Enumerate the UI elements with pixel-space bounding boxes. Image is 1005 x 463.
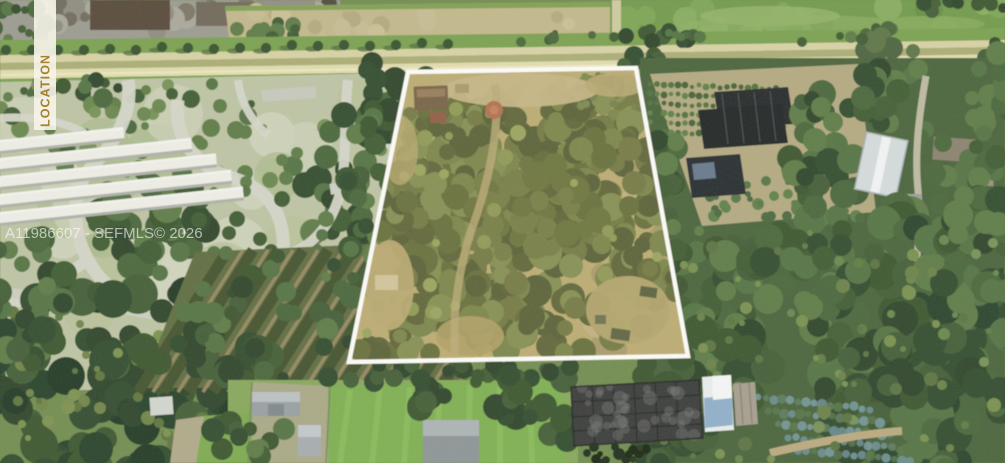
- svg-text:A11986607 - SEFMLS© 2026: A11986607 - SEFMLS© 2026: [5, 225, 203, 242]
- svg-text:LOCATION: LOCATION: [39, 54, 53, 127]
